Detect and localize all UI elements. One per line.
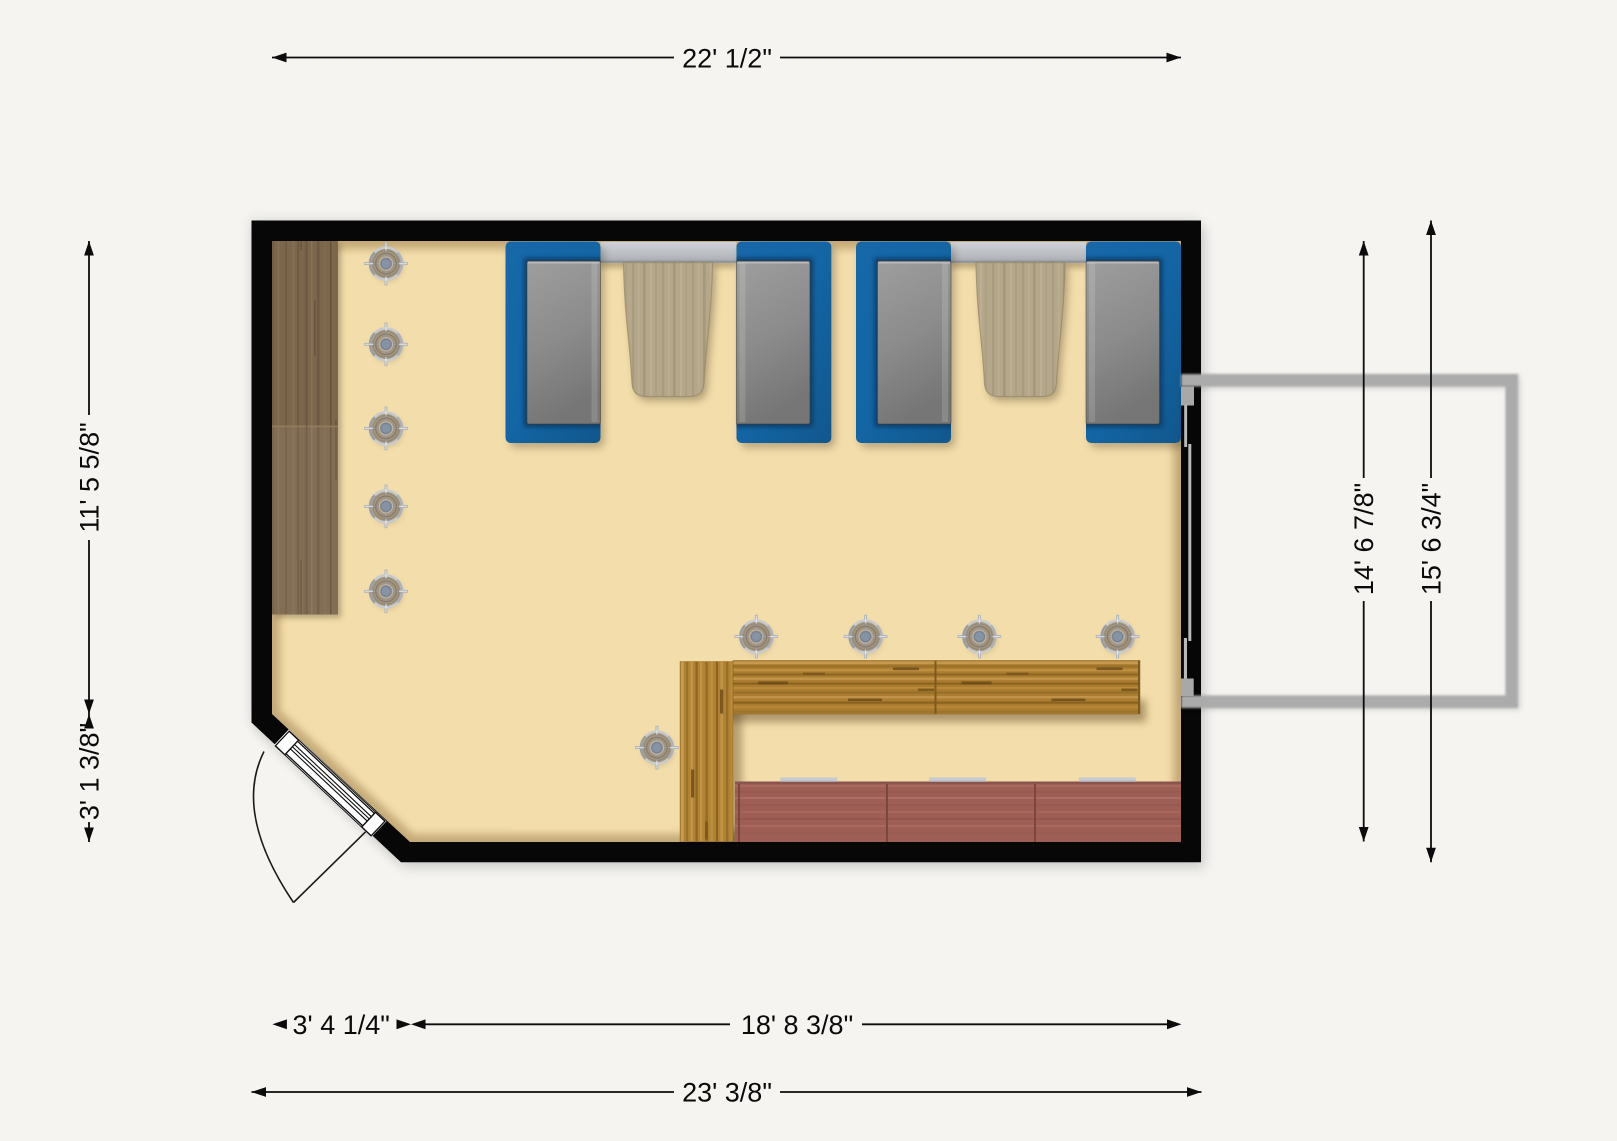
svg-text:15' 6 3/4": 15' 6 3/4": [1417, 483, 1447, 595]
svg-text:22' 1/2": 22' 1/2": [682, 44, 772, 74]
svg-text:18' 8 3/8": 18' 8 3/8": [741, 1010, 853, 1040]
svg-text:3' 4 1/4": 3' 4 1/4": [293, 1010, 390, 1040]
svg-text:3' 1 3/8": 3' 1 3/8": [75, 723, 105, 820]
svg-text:14' 6 7/8": 14' 6 7/8": [1349, 483, 1379, 595]
svg-text:23' 3/8": 23' 3/8": [682, 1078, 772, 1108]
svg-text:11' 5 5/8": 11' 5 5/8": [75, 422, 105, 532]
